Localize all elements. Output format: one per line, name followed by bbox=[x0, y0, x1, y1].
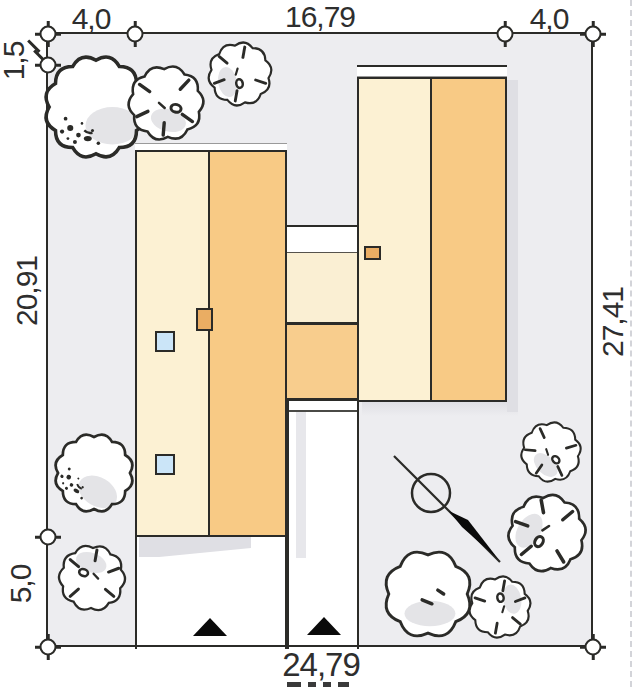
tree-symbol bbox=[51, 536, 134, 620]
clipped-caption-fragment bbox=[287, 682, 377, 687]
dim-bottom: 24,79 bbox=[282, 648, 360, 681]
dimension-marker bbox=[497, 26, 514, 43]
dimension-marker bbox=[585, 639, 602, 656]
tree-symbol bbox=[203, 38, 276, 109]
tree-symbol bbox=[464, 572, 535, 641]
tree-symbol bbox=[495, 481, 599, 585]
dim-right-side: 27,41 bbox=[598, 287, 628, 357]
dimension-marker bbox=[127, 26, 144, 43]
dim-left-bottom: 5,0 bbox=[6, 565, 36, 604]
tree-symbol bbox=[509, 410, 592, 493]
dim-left-top: 1,5 bbox=[0, 42, 29, 81]
dim-top-middle: 16,79 bbox=[285, 2, 355, 32]
dimension-marker bbox=[40, 529, 57, 546]
dim-left-middle: 20,91 bbox=[12, 256, 42, 326]
dimension-marker bbox=[585, 26, 602, 43]
dim-top-left: 4,0 bbox=[72, 4, 111, 34]
site-plan: 4,0 16,79 4,0 1,5 20,91 5,0 27,41 24,79 bbox=[0, 0, 634, 687]
tree-symbol bbox=[42, 421, 147, 526]
screenshot-edge-artifact bbox=[630, 0, 632, 687]
north-arrow bbox=[394, 456, 500, 562]
dim-top-right: 4,0 bbox=[530, 4, 569, 34]
trees-layer bbox=[0, 0, 634, 687]
tree-symbol bbox=[386, 552, 470, 636]
dimension-marker bbox=[40, 57, 57, 74]
dimension-marker bbox=[40, 26, 57, 43]
dimension-marker bbox=[40, 639, 57, 656]
